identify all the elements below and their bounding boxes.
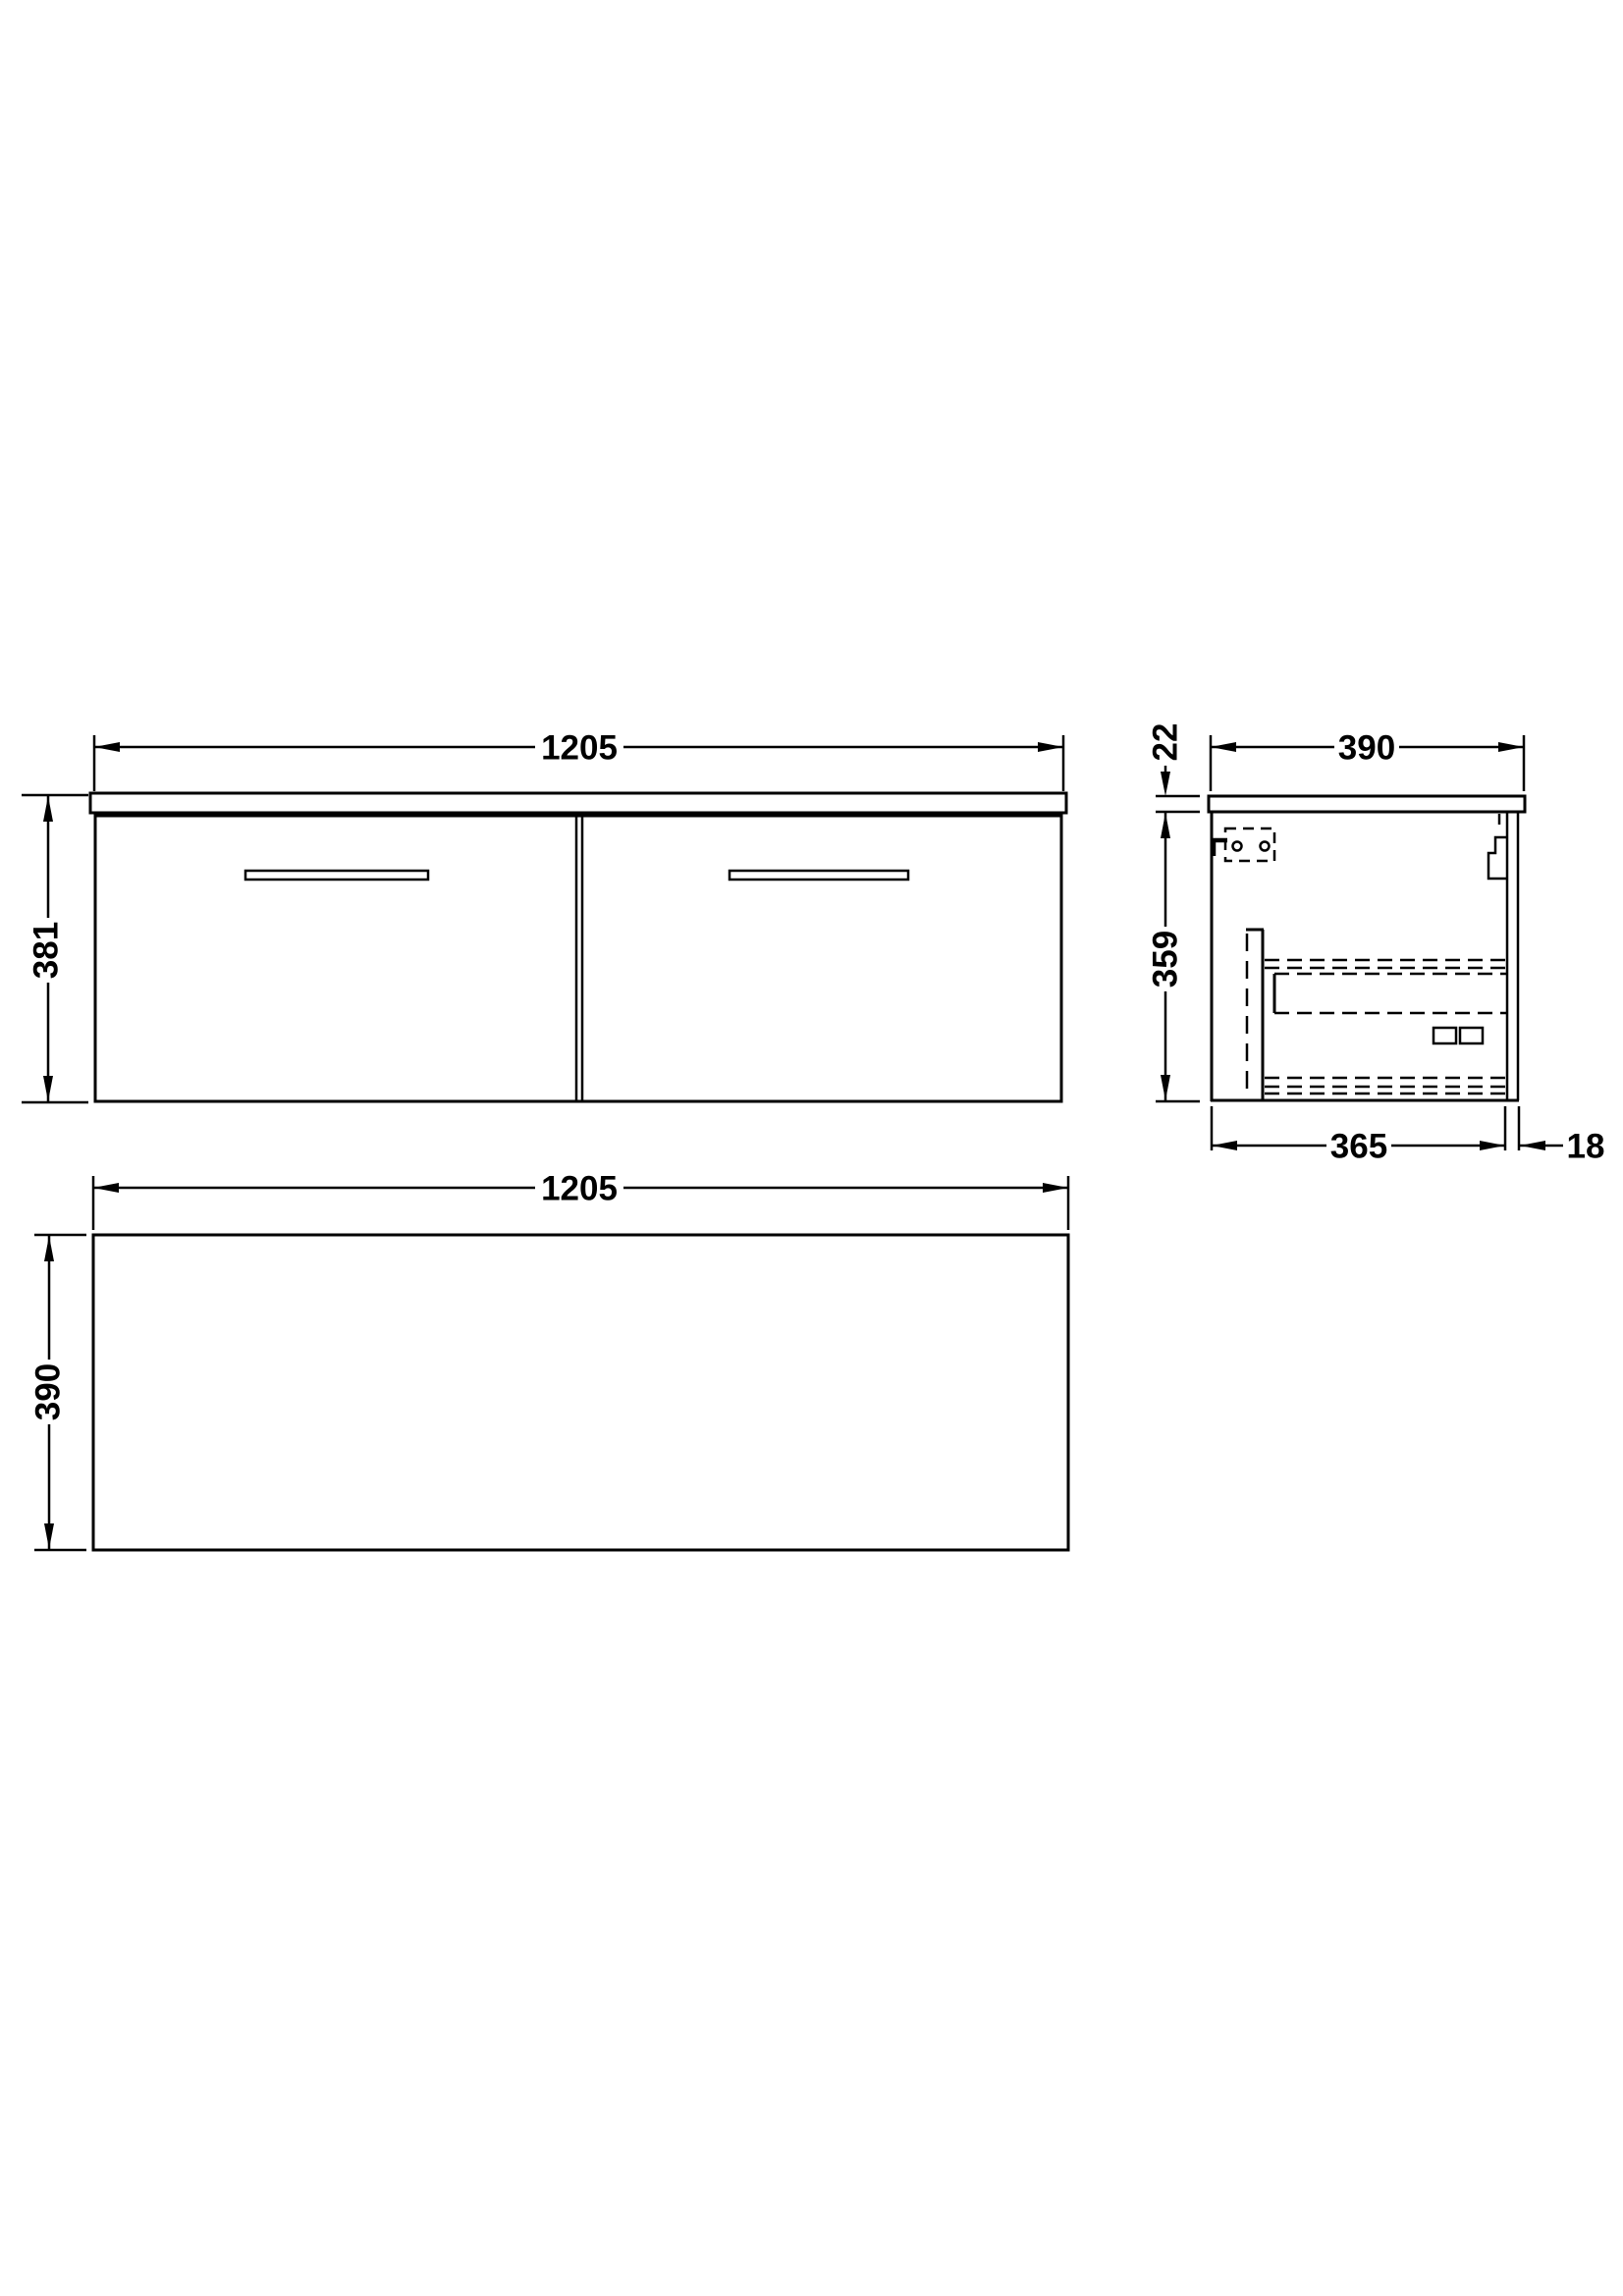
drawer-hidden-lines	[1265, 960, 1506, 1094]
side-worktop-thickness-label-group: 22	[1147, 719, 1185, 766]
side-cabinet-height-dimension: 359	[1147, 813, 1201, 1101]
arrowhead-up-icon	[43, 796, 53, 822]
drawing-page: 1205 381	[0, 0, 1623, 2296]
arrowhead-left-icon	[93, 1183, 119, 1193]
drawer-handle-right	[730, 871, 908, 880]
arrowhead-left-icon	[1212, 1141, 1237, 1150]
arrowhead-left-icon	[94, 742, 120, 752]
runner-clip-left	[1434, 1028, 1456, 1043]
arrowhead-up-icon	[1161, 813, 1170, 838]
plan-outline	[93, 1235, 1068, 1550]
side-worktop-thickness-dimension: 22	[1147, 719, 1201, 812]
plan-width-dimension: 1205	[93, 1170, 1068, 1231]
worktop-front	[90, 793, 1066, 813]
front-view: 1205 381	[22, 729, 1066, 1103]
arrowhead-down-icon	[44, 1523, 54, 1549]
arrowhead-down-icon	[43, 1076, 53, 1101]
technical-drawing: 1205 381	[0, 0, 1623, 2296]
side-cabinet-height-label-group: 359	[1147, 927, 1185, 991]
front-width-dimension: 1205	[94, 729, 1063, 792]
plan-depth-dimension: 390	[29, 1235, 87, 1550]
worktop-side	[1209, 796, 1525, 812]
bracket-screw-hole-left	[1233, 842, 1242, 851]
side-cabinet-depth-dimension: 365	[1212, 1106, 1505, 1166]
wall-bracket	[1214, 828, 1274, 861]
plan-depth-label: 390	[29, 1363, 68, 1420]
side-back-panel-dimension: 18	[1519, 1106, 1604, 1166]
arrowhead-down-icon	[1161, 1075, 1170, 1100]
front-height-dimension: 381	[22, 795, 88, 1102]
front-width-label: 1205	[541, 729, 618, 768]
arrowhead-down-icon	[1161, 772, 1170, 796]
plan-view: 1205 390	[29, 1170, 1069, 1551]
bracket-screw-hole-right	[1261, 842, 1270, 851]
hanging-bracket	[1488, 814, 1507, 879]
side-cabinet-height-label: 359	[1147, 931, 1185, 988]
runner-clip-right	[1460, 1028, 1483, 1043]
side-back-panel-label: 18	[1567, 1128, 1605, 1166]
arrowhead-right-icon	[1480, 1141, 1505, 1150]
side-depth-dimension: 390	[1211, 729, 1524, 792]
hanging-bracket-profile	[1488, 837, 1507, 879]
side-view: 390 22 359	[1147, 719, 1605, 1166]
arrowhead-right-icon	[1038, 742, 1063, 752]
drawer-support-bar	[1246, 930, 1264, 1100]
front-height-label-group: 381	[27, 918, 66, 983]
arrowhead-left-icon	[1520, 1141, 1545, 1150]
side-worktop-thickness-label: 22	[1147, 723, 1185, 762]
front-height-label: 381	[27, 922, 66, 979]
drawer-handle-left	[245, 871, 428, 880]
side-depth-label: 390	[1338, 729, 1395, 768]
arrowhead-right-icon	[1043, 1183, 1068, 1193]
arrowhead-up-icon	[44, 1236, 54, 1261]
plan-width-label: 1205	[541, 1170, 618, 1208]
drawer-fronts-outline	[95, 816, 1061, 1101]
arrowhead-left-icon	[1211, 742, 1236, 752]
side-cabinet-depth-label: 365	[1330, 1128, 1387, 1166]
plan-depth-label-group: 390	[29, 1360, 68, 1424]
arrowhead-right-icon	[1498, 742, 1524, 752]
